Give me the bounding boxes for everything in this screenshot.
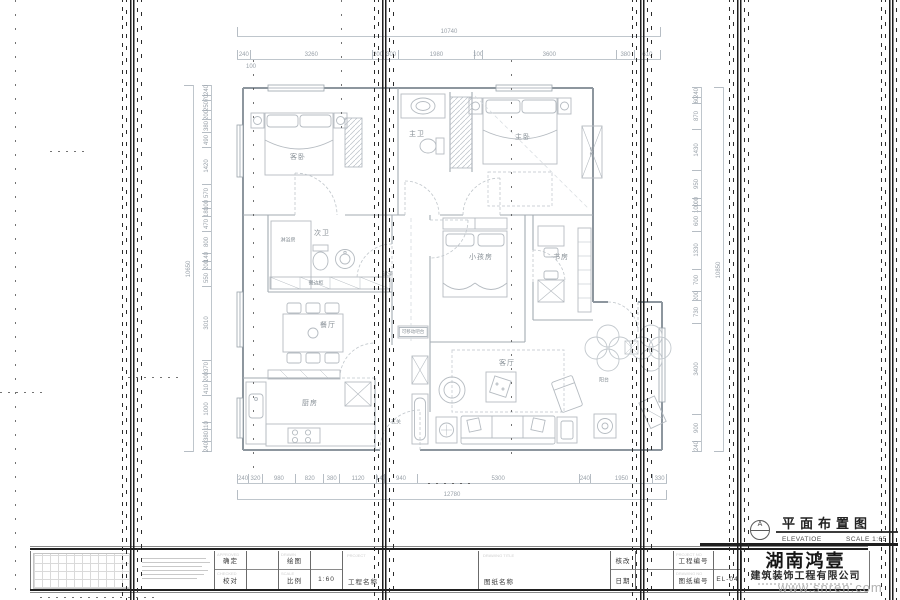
room-label-living: 客厅: [499, 358, 515, 368]
reference-letter: A: [751, 521, 769, 528]
cell-approved: APPROVED确定 CHECKED校对: [214, 551, 246, 589]
room-label-master-bedroom: 主卧: [515, 132, 531, 142]
interior-walls: [243, 88, 593, 450]
cell-project: PROJECT 工程名称: [342, 551, 478, 589]
watermark: www.snren.com: [778, 580, 883, 595]
title-underline: [776, 531, 898, 533]
dim-right-segments: 2406087014309501001006001330700200730340…: [692, 87, 702, 452]
room-label-guest-bedroom: 客卧: [290, 152, 306, 162]
cell-scale-value: 1:60: [310, 551, 342, 589]
cell-revision-value: [635, 551, 673, 589]
dwg-title-en: DRAWING TITLE: [483, 553, 514, 558]
revision-label: 核改: [616, 555, 631, 565]
title-block-table: APPROVED确定 CHECKED校对 DRAWN绘图 SCALE比例 1:6…: [30, 551, 870, 589]
date-label: 日期: [616, 575, 631, 585]
room-label-storage: 储物: [589, 147, 596, 157]
checked-en: CHECKED: [217, 571, 237, 576]
project-label: 工程名称: [348, 576, 378, 586]
room-label-kids-room: 小孩房: [469, 252, 493, 262]
dim-bottom-segments: 240320980820380112014094053002401950330: [237, 474, 667, 484]
room-label-sideboard: 餐边柜: [308, 280, 323, 287]
drawing-title-marker: A 平面布置图 ELEVATIOE SCALE 1:65: [742, 512, 898, 546]
company-logo-grid: [33, 553, 130, 589]
floor-plan-linework: [0, 0, 900, 600]
room-label-kitchen: 厨房: [302, 398, 318, 408]
room-label-entry: 玄关: [391, 419, 401, 426]
dim-left-overall: 10650: [184, 85, 194, 452]
company-name: 湖南鸿壹: [742, 552, 869, 571]
dim-bottom-overall: 12780: [237, 490, 667, 500]
drawing-scale-label: SCALE 1:65: [846, 536, 887, 543]
approved-en: APPROVED: [217, 552, 239, 557]
room-label-dining: 餐厅: [320, 320, 336, 330]
titleblock-border-line: [30, 548, 868, 550]
cell-approved-value: [246, 551, 278, 589]
drawing-type-label: ELEVATIOE: [782, 536, 822, 543]
drawing-no-value: EL-04: [716, 576, 738, 583]
drawing-no-label: 图纸编号: [679, 575, 709, 585]
room-label-master-bath: 主卫: [409, 129, 425, 139]
scale-en: SCALE: [281, 571, 294, 576]
titleblock-border-line: [30, 592, 868, 593]
cell-drawing-no-value: EL-04: [713, 551, 741, 589]
dim-left-segments: 2407025020038049014205701001804708001402…: [202, 85, 212, 452]
room-label-second-bath: 次卫: [314, 228, 330, 238]
detail-reference-circle: A: [750, 520, 770, 540]
project-no-en: PROJECT NO: [676, 552, 702, 557]
titleblock-border-line: [30, 546, 868, 547]
drawing-title: 平面布置图: [782, 513, 872, 532]
notes-text-lines: [142, 555, 212, 585]
room-label-shower-room: 淋浴房: [280, 237, 295, 244]
dim-top-segments: 240326020030019801003600380610: [237, 50, 661, 60]
titleblock-border-line: [30, 589, 868, 591]
scale-value: 1:60: [318, 576, 335, 583]
cell-numbers: PROJECT NO工程编号 DRAWING NO图纸编号: [673, 551, 713, 589]
cell-drawn: DRAWN绘图 SCALE比例: [278, 551, 310, 589]
checked-label: 校对: [223, 575, 238, 585]
cell-revision-date: 核改 日期: [610, 551, 635, 589]
scale-label: 比例: [287, 575, 302, 585]
room-label-balcony: 阳台: [599, 377, 609, 384]
room-label-study: 书房: [553, 252, 569, 262]
blueprint-page: 客卧 主卫 主卧 储物 次卫 淋浴房 过道 小孩房 书房 餐边柜 餐厅 可移动吧…: [0, 0, 900, 600]
drawn-en: DRAWN: [281, 552, 296, 557]
dim-top-sub: 100: [246, 64, 256, 70]
dim-right-overall: 10850: [714, 87, 724, 452]
room-label-movable-bar: 可移动吧台: [399, 327, 428, 337]
dwg-title-label: 图纸名称: [484, 576, 514, 586]
drawing-no-en: DRAWING NO: [676, 571, 702, 576]
room-label-corridor: 过道: [383, 271, 393, 278]
project-en: PROJECT: [347, 553, 366, 558]
cell-drawing-title: DRAWING TITLE 图纸名称: [478, 551, 610, 589]
dim-top-overall: 10740: [237, 27, 661, 37]
